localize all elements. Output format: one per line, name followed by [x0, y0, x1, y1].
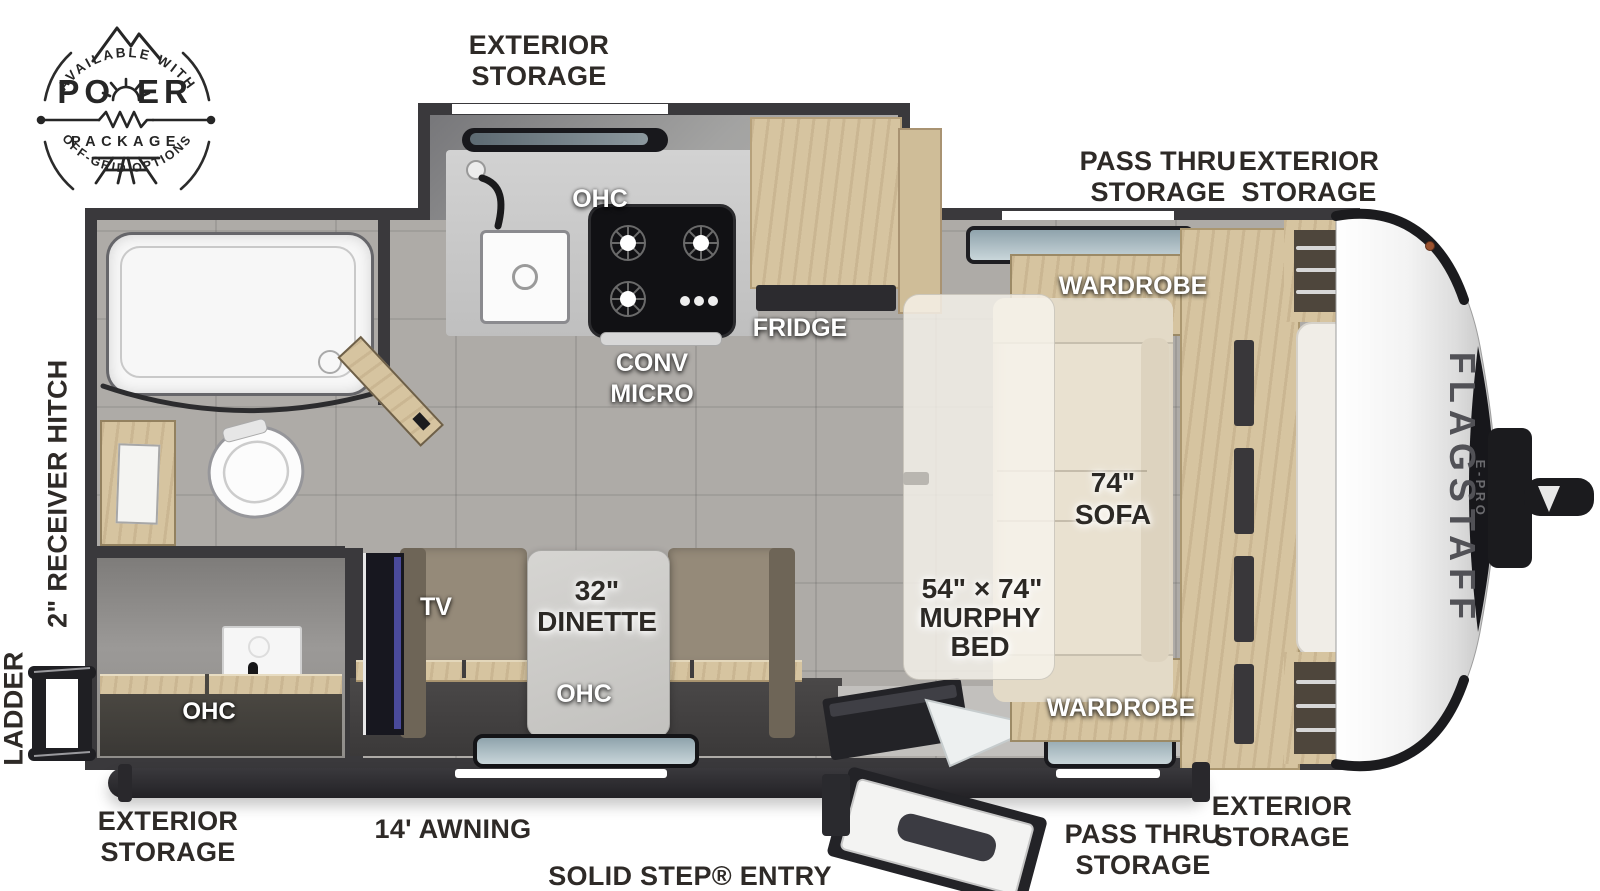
power-package-badge: AVAILABLE WITH OFF-GRID OPTIONS PO ER PA… — [25, 0, 230, 205]
deck-slat — [1234, 448, 1254, 534]
step-bracket — [822, 774, 850, 836]
awning-bracket-left — [118, 764, 132, 802]
label-ohc-kitchen: OHC — [550, 186, 650, 214]
badge-package-text: PACKAGE — [71, 134, 181, 150]
fridge-front — [756, 285, 896, 311]
label-murphy-bed: BED — [890, 632, 1070, 663]
ladder-icon — [24, 658, 104, 773]
murphy-bed-handle — [903, 472, 929, 485]
badge-power-left: PO — [57, 73, 115, 110]
kitchen-faucet — [462, 156, 526, 236]
vanity-mirror — [116, 443, 161, 524]
label-micro: MICRO — [572, 381, 732, 409]
dinette-window — [473, 734, 699, 768]
kitchen-ohc-glass — [470, 133, 648, 145]
label-awning: 14' AWNING — [343, 814, 563, 845]
stove-drawer — [600, 332, 722, 346]
awning-band-left — [455, 769, 667, 778]
label-murphy: MURPHY — [890, 603, 1070, 634]
clearance-light — [1426, 242, 1435, 251]
bathtub-drain — [318, 350, 342, 374]
label-sofa-size: 74" — [1043, 468, 1183, 499]
alcove-counter-gap — [205, 674, 209, 694]
deck-slat — [1234, 664, 1254, 744]
deck-slat — [1234, 556, 1254, 642]
label-murphy-size: 54" × 74" — [892, 574, 1072, 605]
label-solid-step-entry: SOLID STEP® ENTRY — [540, 861, 840, 891]
resistor-line-icon — [38, 112, 214, 127]
solid-step — [808, 756, 1108, 891]
sill-gap — [462, 660, 466, 678]
alcove-wall — [97, 546, 345, 558]
tv — [363, 553, 404, 735]
awning-bracket-right — [1192, 762, 1210, 802]
label-wardrobe-bottom: WARDROBE — [1021, 695, 1221, 723]
sill-gap — [690, 660, 694, 678]
label-exterior-storage-bottom-left: EXTERIOR STORAGE — [58, 806, 278, 869]
bench-arm-right — [769, 548, 795, 738]
top-wall-left — [85, 208, 418, 220]
bed-platform-deck — [1180, 228, 1300, 770]
label-dinette: DINETTE — [517, 607, 677, 638]
pantry-column — [898, 128, 942, 314]
label-receiver-hitch: 2" RECEIVER HITCH — [42, 344, 73, 644]
alcove-sink-drain — [248, 636, 270, 658]
label-conv: CONV — [572, 350, 732, 378]
tv-edge-light — [394, 557, 401, 729]
kitchen-sink-drain — [512, 264, 538, 290]
deck-slat — [1234, 340, 1254, 426]
slide-storage-door-band — [452, 104, 668, 114]
label-tv: TV — [396, 594, 476, 622]
label-dinette-size: 32" — [517, 576, 677, 607]
stove-burners — [588, 204, 736, 338]
slide-left-wall — [418, 103, 430, 220]
badge-power-right: ER — [137, 73, 193, 110]
label-ohc-rear: OHC — [159, 699, 259, 725]
fridge-counter — [750, 117, 902, 289]
tongue-jack — [1480, 420, 1600, 580]
label-sofa: SOFA — [1043, 500, 1183, 531]
toilet — [196, 416, 320, 530]
window-band-top — [1002, 211, 1174, 220]
label-wardrobe-top: WARDROBE — [1033, 273, 1233, 301]
door-handle — [412, 412, 430, 431]
label-ohc-dinette: OHC — [534, 681, 634, 709]
label-fridge: FRIDGE — [720, 315, 880, 343]
label-exterior-storage-top: EXTERIOR STORAGE — [429, 30, 649, 93]
floorplan-canvas: AVAILABLE WITH OFF-GRID OPTIONS PO ER PA… — [0, 0, 1600, 891]
